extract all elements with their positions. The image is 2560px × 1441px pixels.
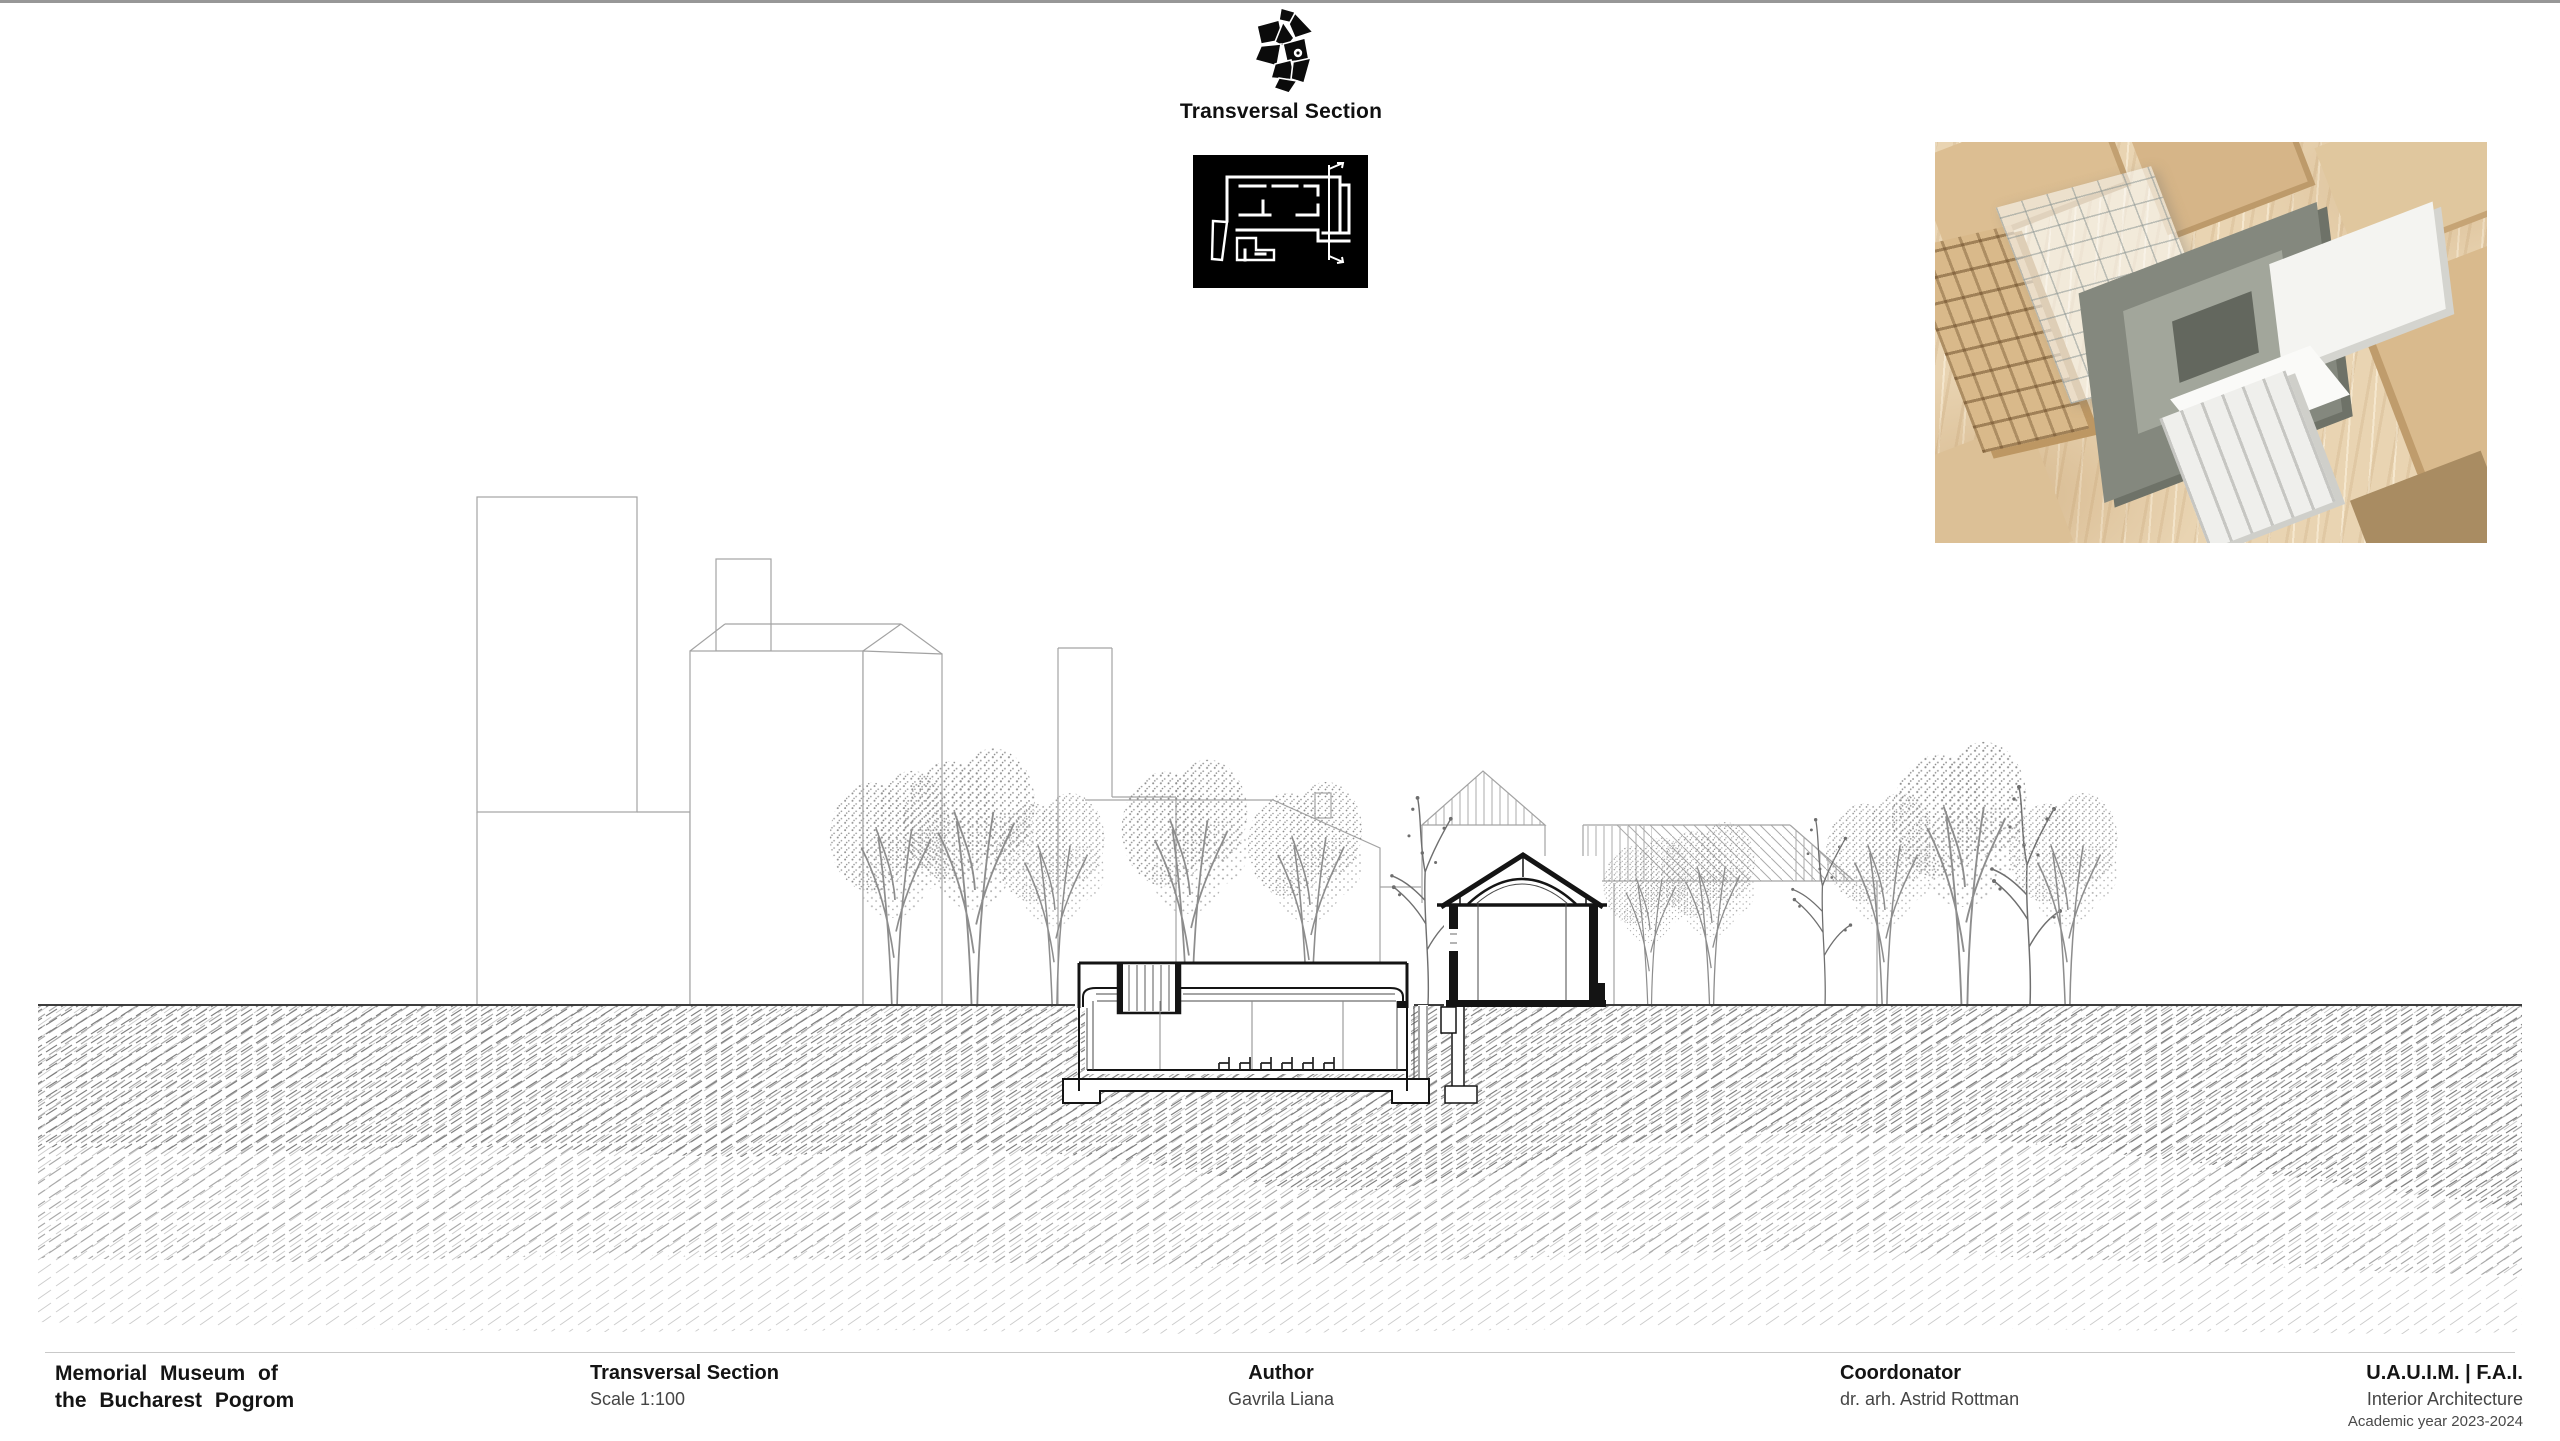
project-title: Memorial Museum of the Bucharest Pogrom [55, 1360, 485, 1414]
author-name: Gavrila Liana [1131, 1386, 1431, 1412]
project-title-line2: the Bucharest Pogrom [55, 1387, 485, 1414]
title-block-divider [45, 1352, 2515, 1353]
author-label: Author [1131, 1360, 1431, 1386]
presentation-board: Transversal Section [0, 0, 2560, 1441]
skylight [1118, 963, 1180, 1013]
drawing-info: Transversal Section Scale 1:100 [590, 1360, 950, 1412]
drawing-title: Transversal Section [590, 1360, 950, 1386]
project-title-line1: Memorial Museum of [55, 1360, 485, 1387]
author-info: Author Gavrila Liana [1131, 1360, 1431, 1412]
institution-info: U.A.U.I.M. | F.A.I. Interior Architectur… [2163, 1360, 2523, 1432]
chapel-section [1437, 855, 1607, 1033]
institution-name: U.A.U.I.M. | F.A.I. [2163, 1360, 2523, 1386]
transversal-section-drawing [0, 0, 2560, 1441]
academic-year: Academic year 2023-2024 [2163, 1412, 2523, 1432]
institution-department: Interior Architecture [2163, 1386, 2523, 1412]
drawing-scale: Scale 1:100 [590, 1386, 950, 1412]
